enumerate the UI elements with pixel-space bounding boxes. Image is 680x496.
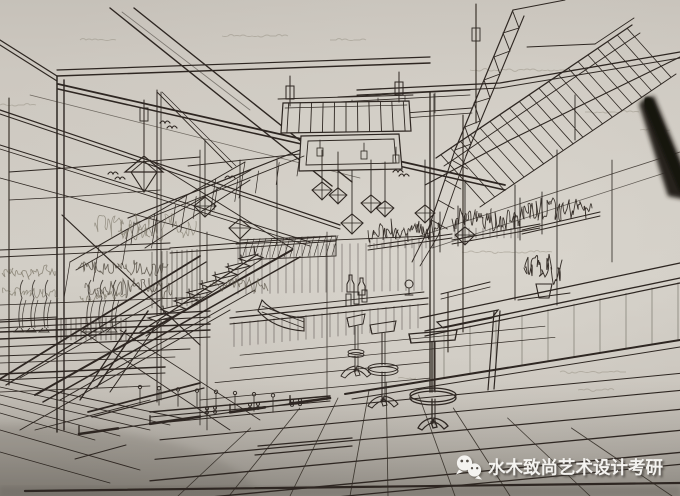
svg-text:水木致尚艺术设计考研: 水木致尚艺术设计考研 (488, 458, 663, 478)
